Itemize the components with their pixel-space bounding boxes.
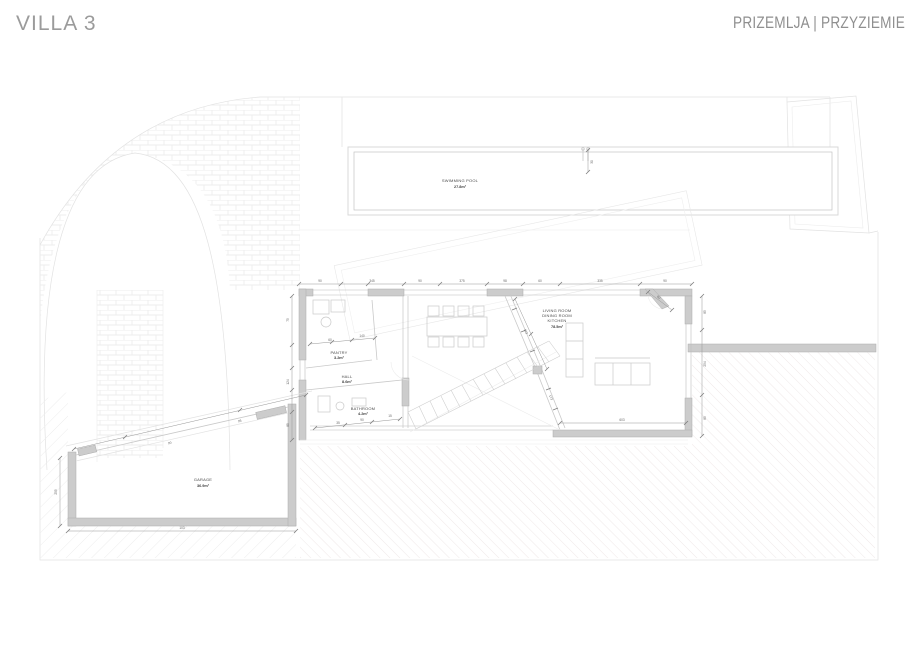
bathroom-area: 4.2m²: [358, 412, 369, 416]
dining-table: [427, 306, 487, 347]
living-area: 78.5m²: [551, 325, 564, 329]
garage-label: GARAGE: [194, 477, 212, 482]
dim-label: 15: [388, 414, 392, 418]
dim-label: 60: [538, 279, 542, 283]
dim-label: 90: [318, 279, 322, 283]
dim-label: 254: [703, 361, 707, 367]
dim-label: 85: [286, 423, 290, 427]
pantry-label: PANTRY: [330, 350, 347, 355]
hall-label: HALL: [342, 374, 353, 379]
pantry-fixtures: [313, 300, 345, 327]
hall-door-arc: [391, 362, 409, 380]
floor-plan: SWIMMING POOL 27.8m²: [0, 0, 919, 649]
swimming-pool: SWIMMING POOL 27.8m²: [348, 147, 838, 215]
sofa: [595, 358, 650, 385]
dim-label: 95: [238, 419, 243, 424]
dim-label: 375: [459, 279, 465, 283]
pool-area: 27.8m²: [454, 185, 467, 189]
dim-label: 603: [619, 418, 625, 422]
dim-label: 35: [336, 421, 340, 425]
living-label-3: KITCHEN: [548, 318, 567, 323]
dim-label: 140: [359, 334, 365, 338]
dim-label: 123: [523, 328, 529, 335]
pantry-area: 3.2m²: [334, 356, 345, 360]
dim-label: 98: [503, 279, 507, 283]
dim-label: 103: [179, 526, 185, 530]
building: [299, 289, 692, 444]
dim-label: 30: [590, 160, 594, 164]
dim-label: 60: [328, 338, 332, 342]
dim-label: 75: [286, 318, 290, 322]
pool-label: SWIMMING POOL: [442, 178, 479, 183]
garage-area: 36.9m²: [197, 484, 210, 488]
dim-label: 90: [360, 418, 364, 422]
dim-label: 90: [418, 279, 422, 283]
dim-label: 255: [54, 489, 58, 495]
dim-label: 85: [703, 416, 707, 420]
dim-label: 335: [597, 279, 603, 283]
hall-area: 8.6m²: [342, 380, 353, 384]
stairs: [408, 341, 560, 429]
bathroom-label: BATHROOM: [351, 406, 375, 411]
dim-label: 85: [703, 310, 707, 314]
dim-label: 124: [286, 379, 290, 385]
kitchen-island: [566, 323, 583, 377]
dim-label: 345: [369, 279, 375, 283]
hatch-right: [300, 352, 875, 558]
room-labels: PANTRY 3.2m² HALL 8.6m² BATHROOM 4.2m² L…: [330, 308, 571, 416]
dim-label: 173: [548, 394, 554, 401]
dim-label: 90: [168, 441, 173, 446]
retaining-wall: [688, 344, 876, 352]
dim-label: 90: [663, 279, 667, 283]
